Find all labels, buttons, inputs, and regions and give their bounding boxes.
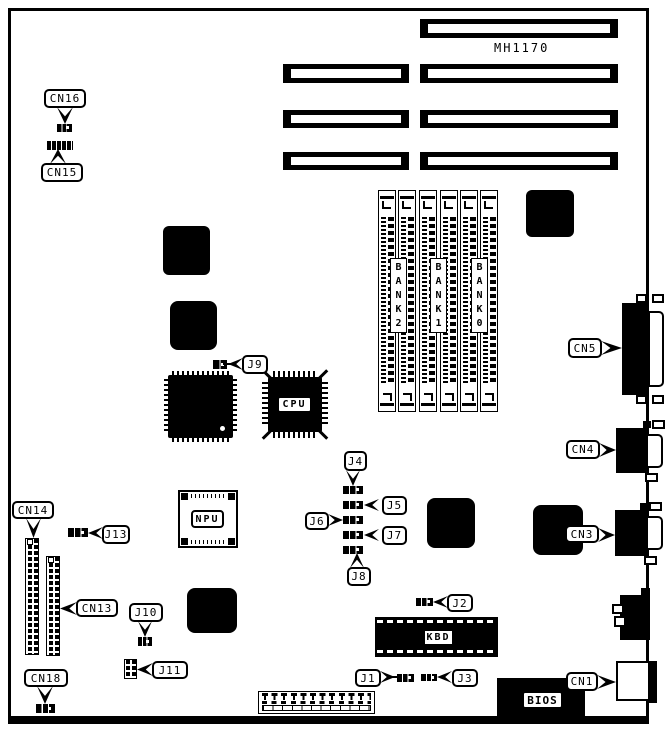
cn18-pins — [36, 704, 55, 713]
j1-pins — [397, 674, 414, 682]
motherboard-diagram: { "board": { "model_text": "MH1170" }, "… — [0, 0, 670, 731]
cn3-dshell — [646, 516, 663, 550]
cn4-connector — [616, 428, 646, 473]
cn3-mount-nub — [640, 503, 648, 510]
j8-label: J8 — [347, 567, 371, 586]
power-plug — [612, 604, 624, 614]
power-connector — [258, 691, 375, 714]
cn16-pins — [57, 124, 72, 132]
power-plug — [614, 616, 626, 627]
board-bottom-edge — [8, 717, 649, 724]
ic-chip — [163, 226, 210, 275]
isa-slot — [420, 152, 618, 170]
cn4-mount-nub — [643, 421, 651, 428]
bank1-label: BANK1 — [430, 258, 447, 333]
cn5-mount-tab — [636, 294, 647, 303]
pin1-dot — [220, 426, 225, 431]
cn5-mount-tab — [652, 395, 664, 404]
j3-label: J3 — [452, 669, 478, 687]
cn15-label: CN15 — [41, 163, 83, 182]
cn13-label: CN13 — [76, 599, 118, 617]
cn3-mount-tab — [649, 502, 662, 511]
bios-label: BIOS — [522, 691, 563, 709]
j4-label: J4 — [344, 451, 367, 471]
ic-chip — [187, 588, 237, 633]
j10-pins — [138, 637, 152, 646]
cn3-mount-tab — [644, 556, 657, 565]
ic-chip — [427, 498, 475, 548]
cn13-header — [46, 556, 60, 656]
cpu-label: CPU — [277, 396, 312, 413]
cn16-label: CN16 — [44, 89, 86, 108]
cn5-mount-tab — [652, 294, 664, 303]
isa-slot — [420, 19, 618, 38]
board-model-text: MH1170 — [494, 41, 549, 55]
j2-label: J2 — [447, 594, 473, 612]
j4-pins — [343, 486, 363, 494]
cn1-edge-bar — [648, 661, 657, 703]
j5-pins — [343, 501, 363, 509]
bank2-label: BANK2 — [390, 258, 407, 333]
isa-slot — [420, 64, 618, 83]
cn5-connector — [622, 303, 648, 395]
ic-chip — [526, 190, 574, 237]
cn15-pins — [47, 141, 73, 150]
j7-pins — [343, 531, 363, 539]
j11-label: J11 — [152, 661, 188, 679]
cn18-label: CN18 — [24, 669, 68, 687]
j7-label: J7 — [382, 526, 407, 545]
j13-label: J13 — [102, 525, 130, 544]
cn4-dshell — [646, 434, 663, 468]
kbd-label: KBD — [423, 629, 454, 646]
j6-pins — [343, 516, 363, 524]
cn4-label: CN4 — [566, 440, 600, 459]
j3-pins — [421, 674, 437, 681]
j6-label: J6 — [305, 512, 329, 530]
ic-chip — [170, 301, 217, 350]
j8-pins — [343, 546, 363, 554]
npu-label: NPU — [191, 510, 224, 528]
cn5-mount-tab — [636, 395, 647, 404]
isa-slot — [283, 110, 409, 128]
j10-label: J10 — [129, 603, 163, 622]
npu-socket: NPU — [178, 490, 238, 548]
cpu-chip: CPU — [262, 371, 328, 438]
isa-slot — [420, 110, 618, 128]
j11-pins — [124, 659, 137, 679]
cn5-label: CN5 — [568, 338, 602, 358]
cn4-mount-tab — [645, 473, 658, 482]
cn3-label: CN3 — [565, 525, 599, 543]
isa-slot — [283, 152, 409, 170]
j13-pins — [68, 528, 88, 537]
cn3-connector — [615, 510, 646, 556]
cn14-header — [25, 538, 39, 655]
j2-pins — [416, 598, 433, 606]
cn1-label: CN1 — [566, 672, 598, 691]
bank0-label: BANK0 — [471, 258, 488, 333]
j5-label: J5 — [382, 496, 407, 515]
j1-label: J1 — [355, 669, 381, 687]
j9-label: J9 — [242, 355, 268, 374]
kbd-chip: KBD — [375, 617, 498, 657]
cn1-connector — [616, 661, 650, 701]
cn5-dshell — [648, 311, 664, 387]
cn4-mount-tab — [652, 420, 665, 429]
qfp-chip — [164, 371, 237, 442]
isa-slot — [283, 64, 409, 83]
cn14-label: CN14 — [12, 501, 54, 519]
